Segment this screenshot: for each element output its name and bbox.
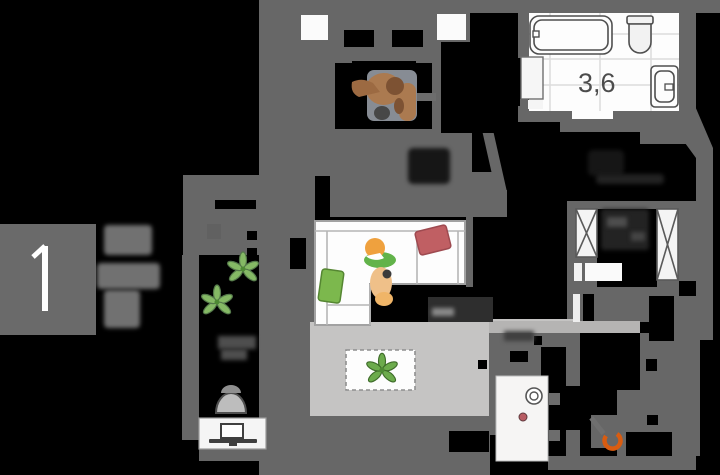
svg-text:3,6: 3,6 (578, 68, 616, 98)
